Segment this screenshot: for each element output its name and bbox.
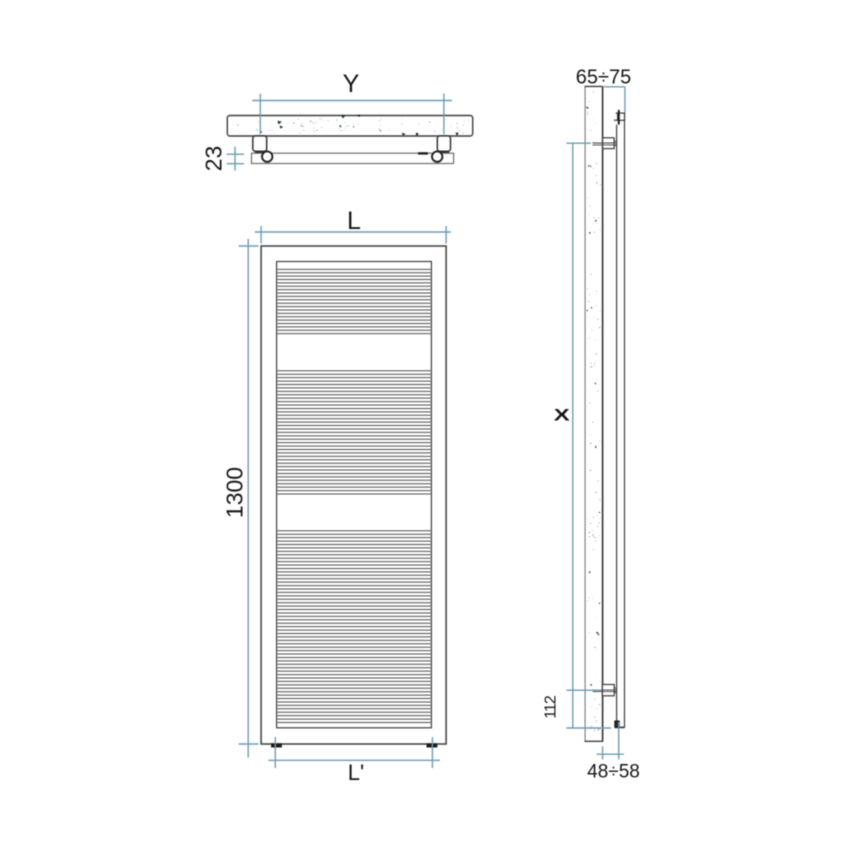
- svg-text:48÷58: 48÷58: [587, 762, 640, 783]
- svg-text:1300: 1300: [222, 467, 248, 518]
- svg-text:65÷75: 65÷75: [576, 67, 631, 89]
- svg-text:L': L': [348, 760, 364, 785]
- svg-text:L: L: [347, 207, 361, 235]
- svg-text:Y: Y: [343, 70, 360, 98]
- svg-text:112: 112: [543, 695, 560, 719]
- svg-text:X: X: [554, 406, 570, 424]
- svg-text:23: 23: [201, 146, 227, 172]
